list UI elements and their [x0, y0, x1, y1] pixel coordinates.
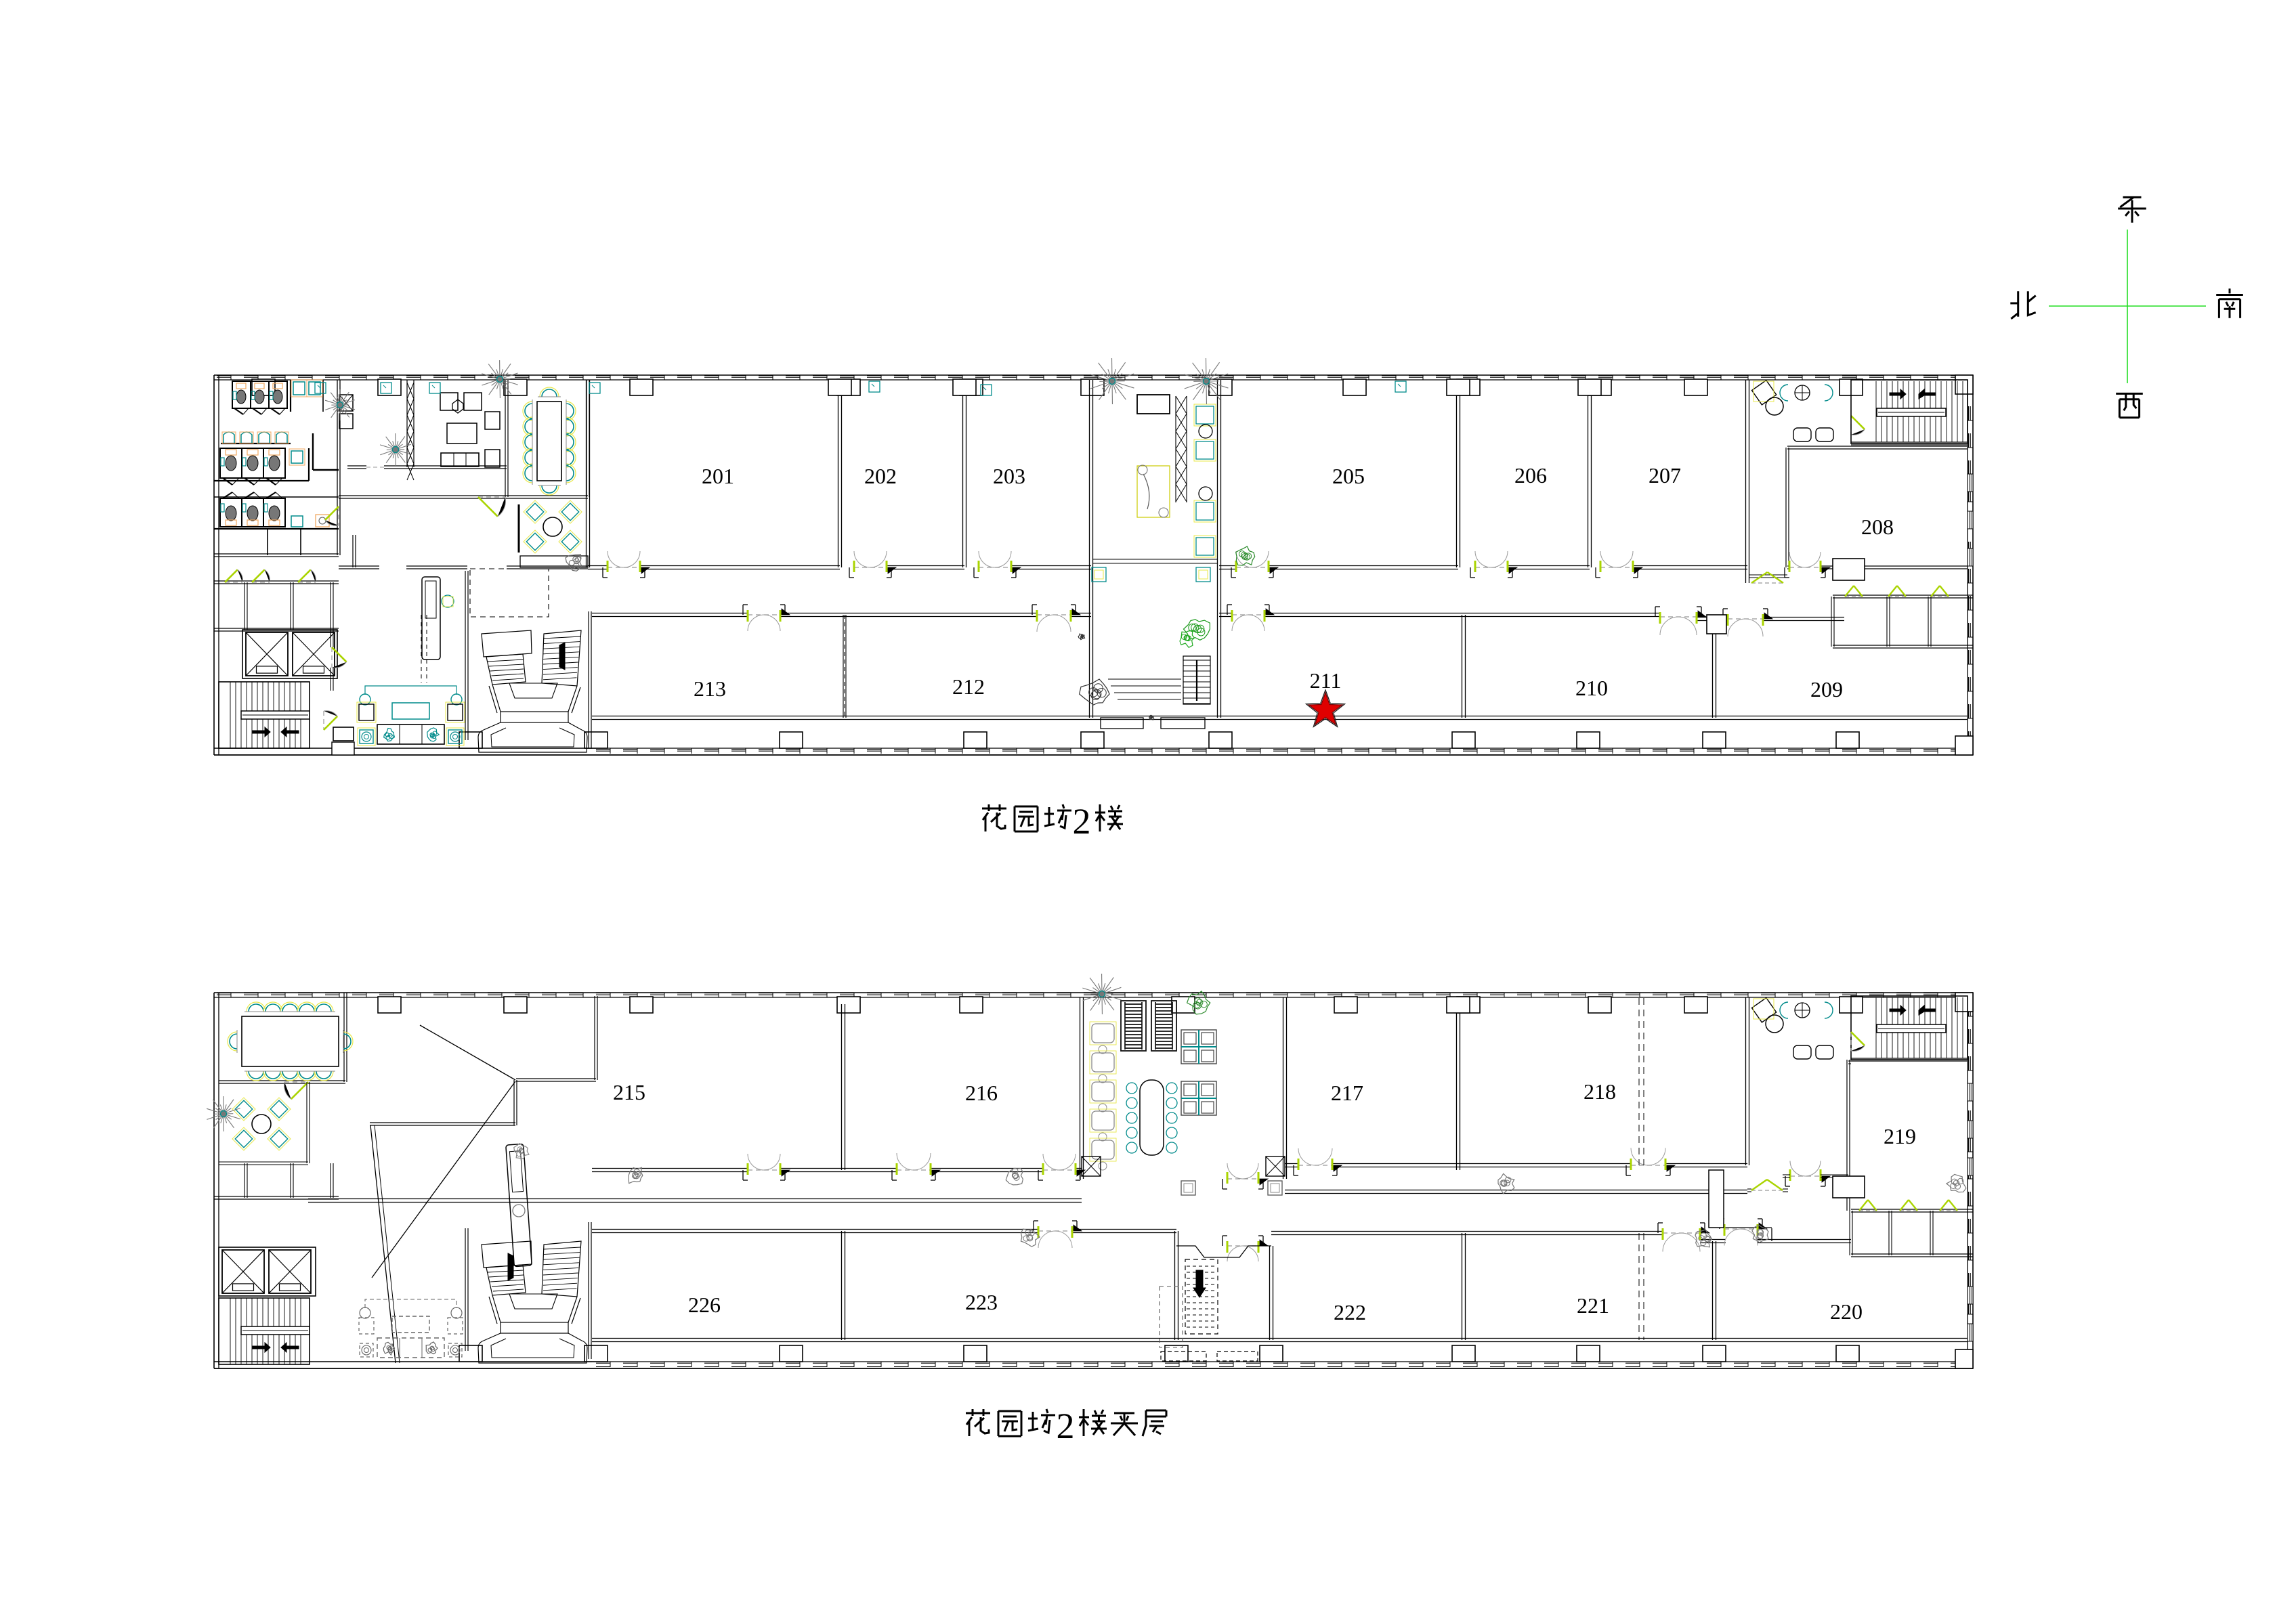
- svg-text:210: 210: [1575, 676, 1608, 700]
- svg-text:226: 226: [688, 1293, 721, 1317]
- svg-text:205: 205: [1332, 464, 1365, 488]
- svg-text:206: 206: [1514, 463, 1547, 488]
- svg-text:222: 222: [1334, 1300, 1366, 1324]
- svg-text:220: 220: [1830, 1299, 1863, 1324]
- svg-text:202: 202: [864, 464, 897, 488]
- svg-text:213: 213: [694, 676, 726, 701]
- svg-text:2: 2: [1073, 801, 1091, 842]
- svg-text:221: 221: [1577, 1293, 1609, 1318]
- svg-text:208: 208: [1861, 515, 1894, 539]
- svg-text:212: 212: [952, 674, 985, 699]
- svg-text:203: 203: [993, 464, 1025, 488]
- svg-text:223: 223: [965, 1290, 998, 1314]
- svg-text:209: 209: [1810, 677, 1843, 701]
- svg-text:201: 201: [702, 464, 734, 488]
- svg-text:219: 219: [1884, 1124, 1916, 1148]
- svg-text:207: 207: [1649, 463, 1681, 488]
- svg-text:217: 217: [1331, 1081, 1363, 1105]
- svg-text:2: 2: [1057, 1406, 1075, 1446]
- svg-text:215: 215: [613, 1080, 645, 1104]
- svg-text:218: 218: [1583, 1079, 1616, 1104]
- svg-text:216: 216: [965, 1081, 998, 1105]
